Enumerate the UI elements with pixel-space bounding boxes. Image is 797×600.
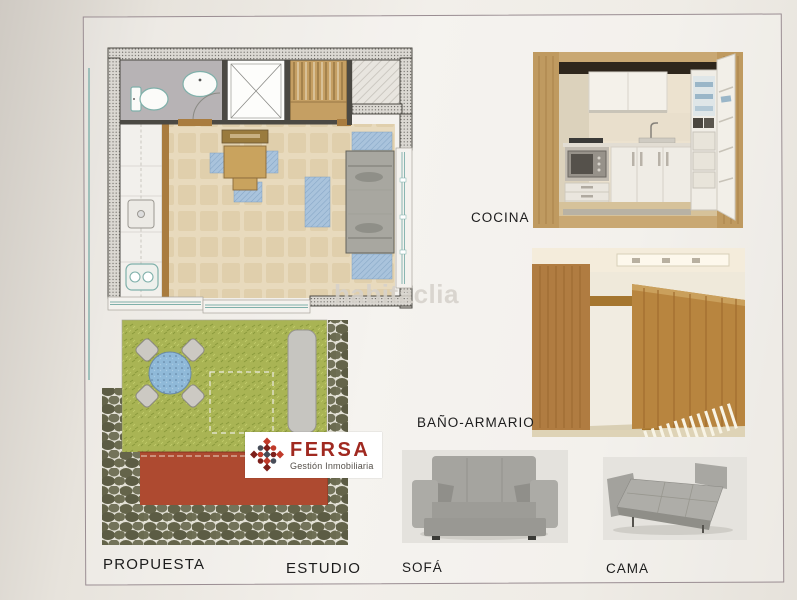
bathroom — [120, 60, 222, 122]
bathroom-wardrobe-photo-art — [532, 248, 745, 437]
rug — [305, 177, 330, 227]
fersa-logo: FERSA Gestión Inmobiliaria — [245, 432, 382, 478]
sun-lounger — [288, 330, 316, 433]
wall-stub — [347, 60, 352, 125]
sofa-photo-art — [402, 450, 568, 543]
listing-page: COCINA BAÑO-ARMARIO SOFÁ CAMA PROPUESTA … — [0, 0, 797, 600]
label-bano-armario: BAÑO-ARMARIO — [417, 415, 535, 430]
kitchen-photo-art — [533, 52, 743, 228]
partition-wall — [120, 120, 347, 125]
label-estudio: ESTUDIO — [286, 560, 361, 577]
wall-stub — [222, 60, 227, 122]
label-cama: CAMA — [606, 561, 649, 576]
exterior-notch — [352, 60, 400, 104]
bathroom-wardrobe-photo — [532, 248, 745, 437]
threshold — [178, 119, 212, 126]
fersa-brand-name: FERSA — [290, 440, 374, 460]
sofa-plan — [346, 132, 394, 279]
sofa-photo — [402, 450, 568, 543]
window-bottom — [108, 297, 310, 313]
bed-photo-art — [603, 457, 747, 540]
kitchen-photo — [533, 52, 743, 228]
fersa-tagline: Gestión Inmobiliaria — [290, 462, 374, 471]
shower — [227, 60, 285, 122]
wardrobe — [290, 60, 347, 125]
habitaclia-watermark: habitaclia — [334, 279, 459, 310]
label-sofa: SOFÁ — [402, 560, 443, 575]
kitchen-counter — [120, 124, 162, 298]
wall-stub — [285, 60, 290, 122]
label-propuesta: PROPUESTA — [103, 556, 205, 573]
label-cocina: COCINA — [471, 210, 530, 225]
window-right — [396, 148, 412, 288]
kitchen-partition — [162, 124, 169, 298]
bed-photo — [603, 457, 747, 540]
fersa-logo-icon — [249, 437, 285, 473]
